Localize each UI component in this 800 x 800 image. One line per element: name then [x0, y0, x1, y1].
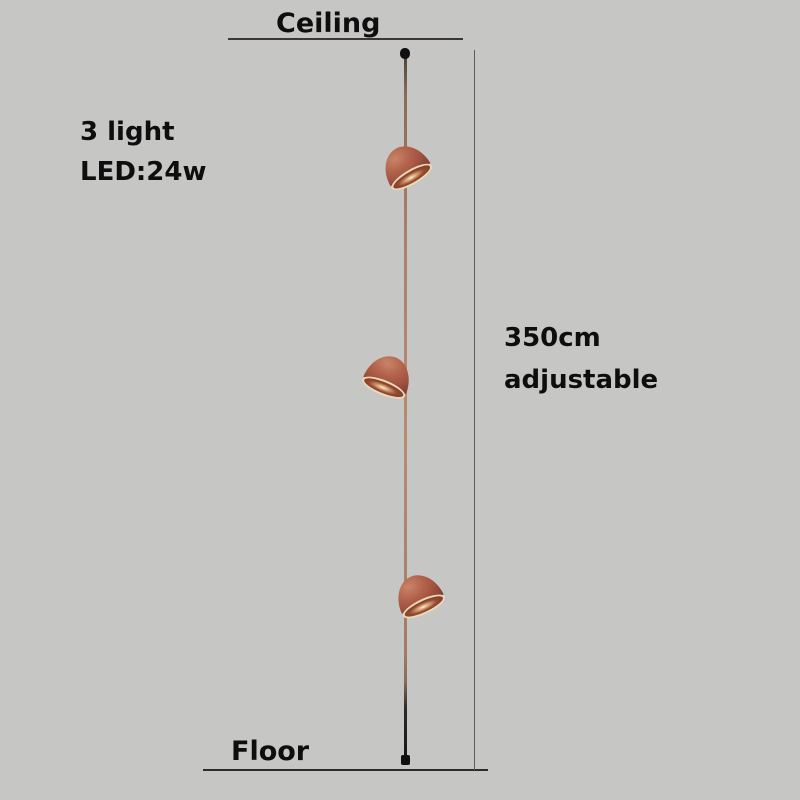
- ceiling-mount-dot: [400, 48, 410, 59]
- measurement-line: [474, 50, 475, 770]
- dimension-length: 350cm: [504, 325, 601, 351]
- dimension-adjustable: adjustable: [504, 367, 658, 393]
- product-diagram: Ceiling Floor 3 light LED:24w 350cm adju…: [0, 0, 800, 800]
- floor-label: Floor: [231, 738, 309, 765]
- ceiling-line: [228, 38, 463, 40]
- floor-line: [203, 769, 488, 771]
- spec-wattage: LED:24w: [80, 159, 207, 185]
- spec-light-count: 3 light: [80, 119, 175, 145]
- lamp-head-middle: [359, 349, 417, 405]
- ceiling-label: Ceiling: [276, 10, 380, 37]
- lamp-head-bottom: [389, 567, 448, 625]
- lamp-head-top: [376, 137, 437, 196]
- floor-end-dot: [401, 755, 410, 765]
